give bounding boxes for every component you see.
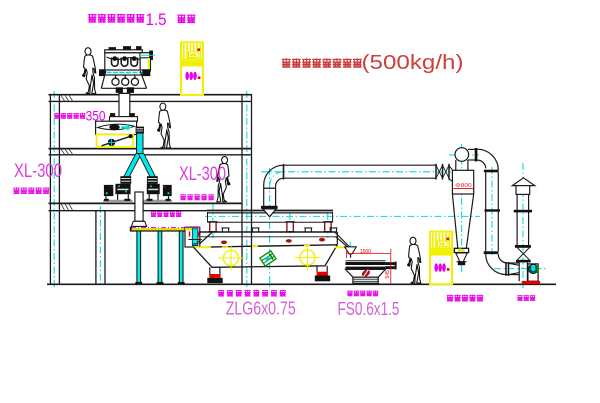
svg-text:XL-300: XL-300	[179, 164, 226, 185]
svg-text:FS0.6x1.5: FS0.6x1.5	[338, 298, 400, 319]
svg-text:Φ800: Φ800	[455, 183, 472, 189]
svg-text:1.5: 1.5	[146, 10, 167, 29]
svg-text:1500: 1500	[360, 249, 371, 255]
svg-text:350: 350	[86, 109, 106, 124]
svg-text:XL-300: XL-300	[14, 161, 62, 182]
svg-text:ZLG6x0.75: ZLG6x0.75	[226, 298, 296, 319]
svg-text:545: 545	[385, 270, 391, 279]
svg-text:(500kg/h): (500kg/h)	[362, 51, 464, 74]
